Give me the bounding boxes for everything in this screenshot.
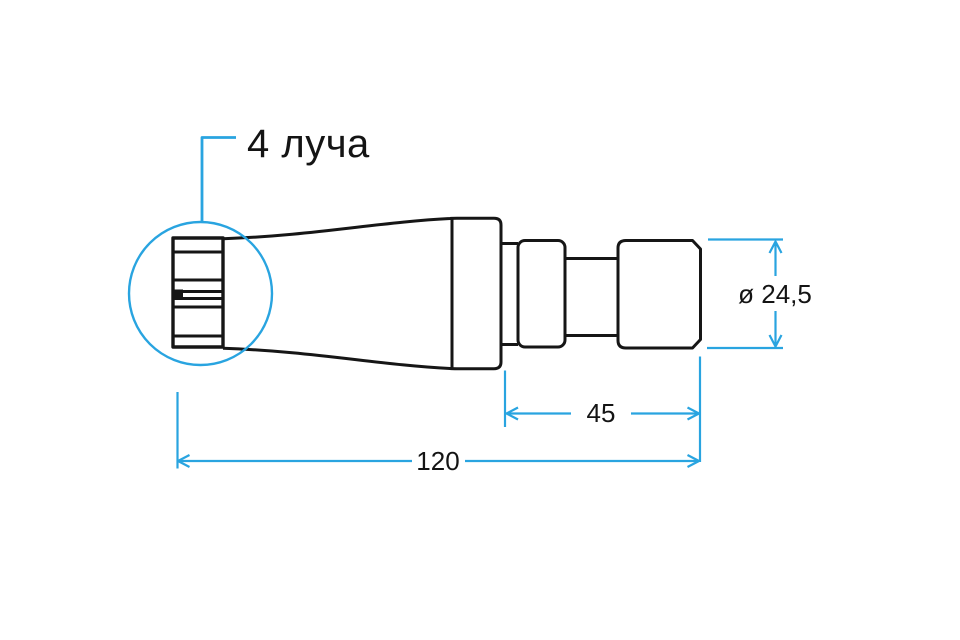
technical-drawing: 4 луча ø 24,5 45 [0,0,960,640]
callout-label: 4 луча [247,122,370,166]
dim-120-label: 120 [416,446,459,476]
dim-diameter: ø 24,5 [707,240,812,349]
dim-45-label: 45 [587,398,616,428]
end-cap [618,241,701,349]
leader-line [202,138,236,222]
callout-circle [129,222,272,365]
callout: 4 луча [129,122,370,365]
tip-detail [172,238,223,347]
drawing-canvas: 4 луча ø 24,5 45 [0,0,960,640]
collar [518,241,565,348]
dim-total-length: 120 [178,392,700,476]
tip-slot-notch [172,290,183,301]
body-taper-outline [223,218,501,368]
dim-head-length: 45 [505,357,700,463]
dim-diameter-label: ø 24,5 [738,279,812,309]
part-outline [172,218,701,368]
